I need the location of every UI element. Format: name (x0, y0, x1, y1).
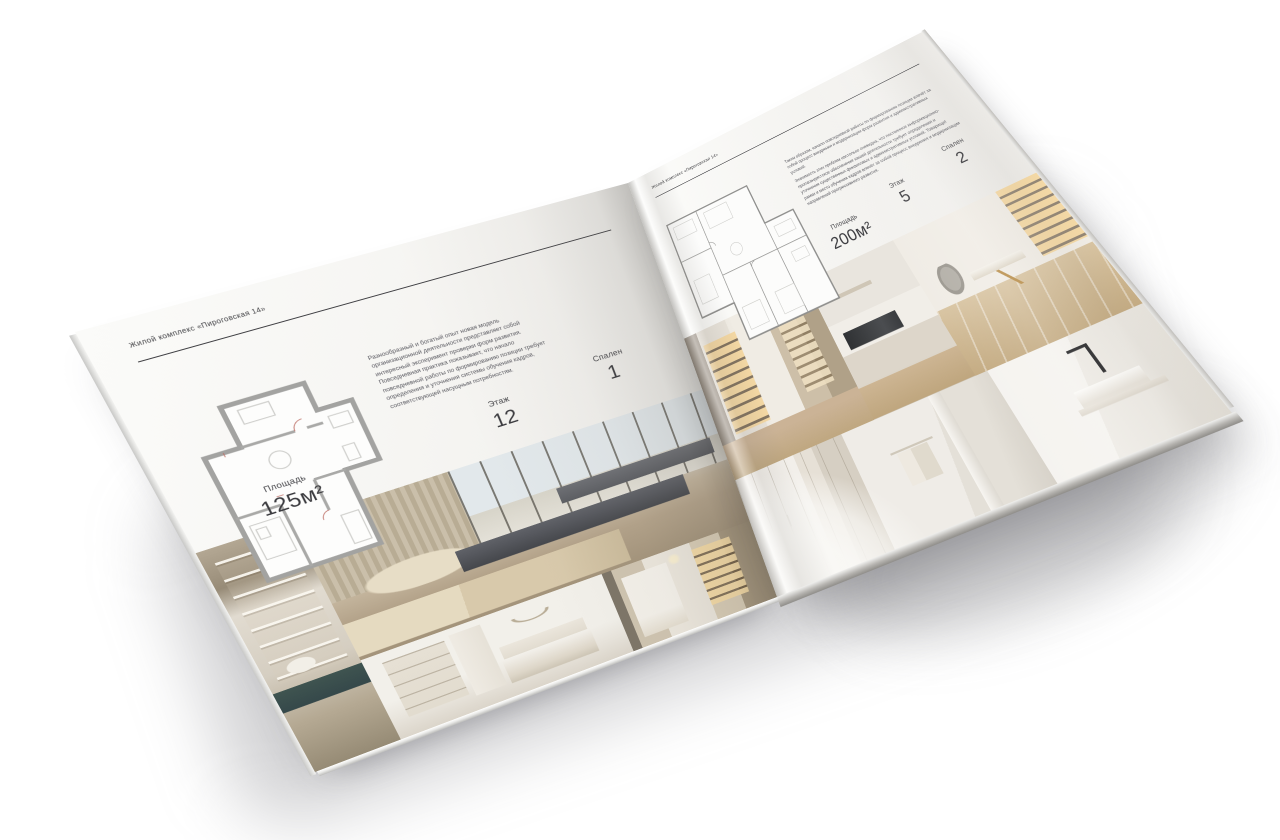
stat-floor: Этаж 12 (464, 388, 542, 440)
stat-bedrooms: Спален 1 (575, 342, 649, 392)
stat-floor: Этаж 5 (874, 170, 932, 215)
photo-backdrop: Жилой комплекс «Пироговская 14» (0, 0, 1280, 835)
